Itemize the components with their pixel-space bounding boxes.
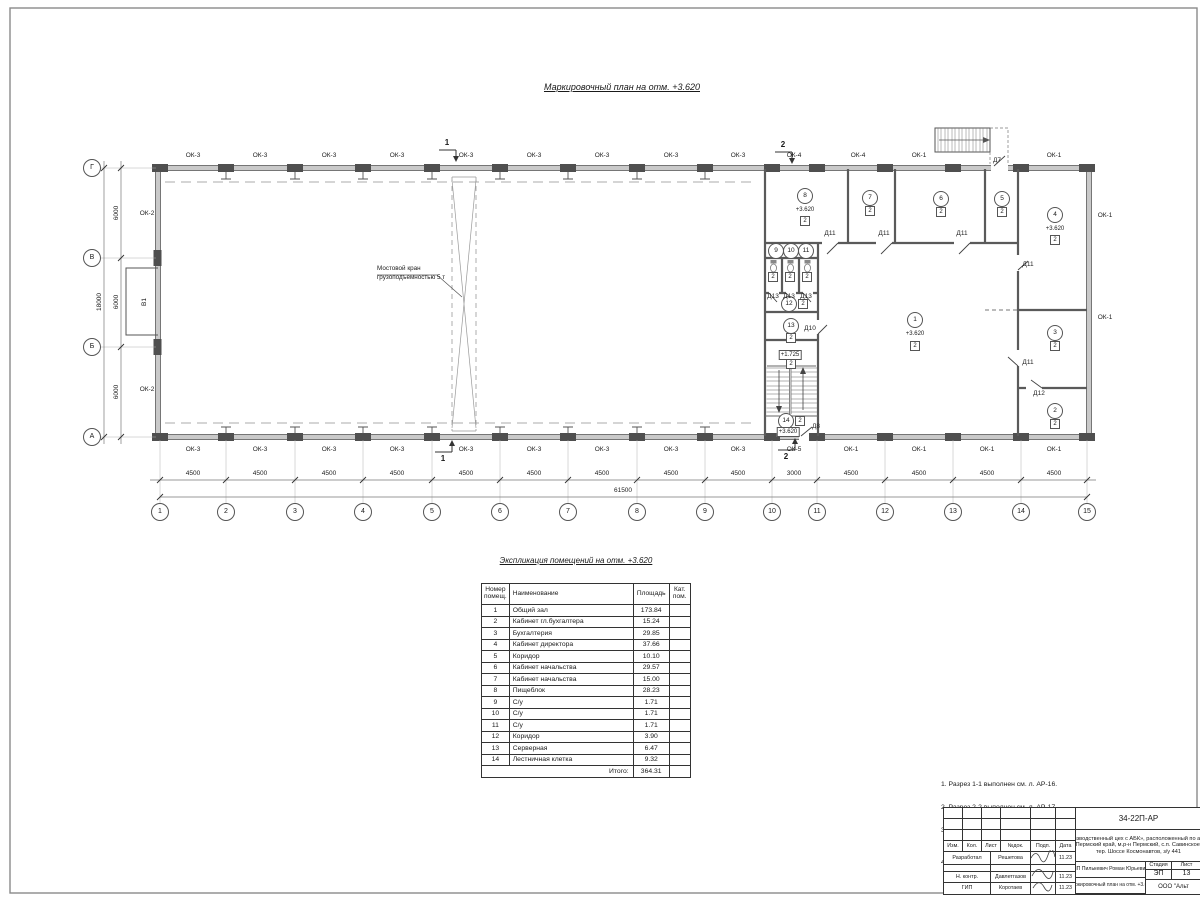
- drawing-sheet: Маркировочный план на отм. +3.620 Экспли…: [0, 0, 1200, 900]
- table-cell: Коридор: [509, 651, 633, 663]
- table-cell: [669, 628, 690, 640]
- table-cell: 12: [482, 731, 510, 743]
- table-row: 7Кабинет начальства15.00: [482, 674, 691, 686]
- dimension-label: 4500: [1047, 471, 1061, 478]
- room-number-bubble: 1: [907, 312, 923, 328]
- title-block: Изм. Кол. Лист №док. Подп. Дата Разработ…: [943, 807, 1200, 895]
- table-cell: [669, 662, 690, 674]
- room-number-bubble: 5: [994, 191, 1010, 207]
- plan-label: ОК-5: [787, 447, 802, 454]
- grid-bubble: А: [83, 428, 101, 446]
- plan-label: ОК-1: [980, 447, 995, 454]
- plan-label: ОК-3: [322, 153, 337, 160]
- stamp-col-ndok: №док.: [1001, 841, 1031, 852]
- plan-label: ОК-3: [390, 153, 405, 160]
- note-item: 1. Разрез 1-1 выполнен см. л. АР-16.: [941, 781, 1196, 789]
- table-row: 10С/у1.71: [482, 708, 691, 720]
- table-cell: 15.00: [633, 674, 669, 686]
- room-category-mark: 2: [768, 272, 778, 282]
- table-cell: 1.71: [633, 697, 669, 709]
- dimension-label: 3000: [787, 471, 801, 478]
- table-cell: [669, 720, 690, 732]
- room-category-mark: 2: [800, 216, 810, 226]
- grid-bubble: 9: [696, 503, 714, 521]
- grid-bubble: 8: [628, 503, 646, 521]
- room-category-mark: 2: [1050, 235, 1060, 245]
- plan-label: ОК-2: [140, 387, 155, 394]
- table-cell: 5: [482, 651, 510, 663]
- table-cell: 9: [482, 697, 510, 709]
- table-row: 1Общий зал173.84: [482, 605, 691, 617]
- table-cell: 29.57: [633, 662, 669, 674]
- plan-label: ОК-3: [664, 153, 679, 160]
- room-category-mark: 2: [865, 206, 875, 216]
- col-header-cat: Кат. пом.: [669, 584, 690, 605]
- plan-label: ОК-3: [527, 153, 542, 160]
- table-row: 3Бухгалтерия29.85: [482, 628, 691, 640]
- elevation-mark: +3.620: [796, 207, 815, 213]
- grid-bubble: 11: [808, 503, 826, 521]
- plan-label: Д11: [1022, 360, 1033, 367]
- table-row: 14Лестничная клетка9.32: [482, 754, 691, 766]
- dimension-label: 4500: [322, 471, 336, 478]
- room-category-mark: 2: [802, 272, 812, 282]
- dimension-label: 61500: [614, 488, 632, 495]
- grid-bubble: 6: [491, 503, 509, 521]
- table-cell: Коридор: [509, 731, 633, 743]
- plan-label: ОК-3: [459, 153, 474, 160]
- grid-bubble: 10: [763, 503, 781, 521]
- table-cell: С/у: [509, 697, 633, 709]
- stamp-doc-code: 34-22П-АР: [1076, 808, 1200, 830]
- plan-label: В1: [142, 298, 149, 306]
- stamp-sheet-title: Маркировочный план на отм. +3.620: [1076, 878, 1146, 894]
- table-cell: 8: [482, 685, 510, 697]
- plan-label: ОК-3: [186, 447, 201, 454]
- room-category-mark: 2: [936, 207, 946, 217]
- table-cell: 10.10: [633, 651, 669, 663]
- table-cell: 29.85: [633, 628, 669, 640]
- table-cell: 11: [482, 720, 510, 732]
- plan-label: Д13: [783, 294, 795, 301]
- grid-bubble: 4: [354, 503, 372, 521]
- dimension-label: 4500: [844, 471, 858, 478]
- grid-bubble: 5: [423, 503, 441, 521]
- dimension-label: 18000: [97, 293, 104, 311]
- plan-label: ОК-3: [527, 447, 542, 454]
- section-mark: 2: [784, 453, 788, 461]
- plan-label: ОК-3: [595, 447, 610, 454]
- room-number-bubble: 10: [783, 243, 799, 259]
- section-mark: 1: [445, 139, 449, 147]
- table-cell: [669, 743, 690, 755]
- plan-label: ОК-1: [1098, 315, 1113, 322]
- table-cell: [669, 685, 690, 697]
- table-row: 11С/у1.71: [482, 720, 691, 732]
- plan-label: ОК-3: [731, 447, 746, 454]
- table-row: 8Пищеблок28.23: [482, 685, 691, 697]
- elevation-mark: +3.620: [1046, 226, 1065, 232]
- plan-label: Д13: [800, 294, 812, 301]
- table-cell: Кабинет гл.бухгалтера: [509, 616, 633, 628]
- table-cell: [669, 651, 690, 663]
- grid-bubble: 13: [944, 503, 962, 521]
- plan-label: Д10: [804, 326, 816, 333]
- table-header-row: Номер помещ. Наименование Площадь Кат. п…: [482, 584, 691, 605]
- stamp-role: Разработал: [944, 852, 991, 865]
- table-row: 9С/у1.71: [482, 697, 691, 709]
- dimension-label: 4500: [527, 471, 541, 478]
- grid-bubble: 2: [217, 503, 235, 521]
- table-cell: Общий зал: [509, 605, 633, 617]
- grid-bubble: 15: [1078, 503, 1096, 521]
- plan-label: ОК-1: [1047, 153, 1062, 160]
- plan-label: Д11: [956, 231, 967, 238]
- plan-label: ОК-1: [1047, 447, 1062, 454]
- room-category-mark: 2: [1050, 341, 1060, 351]
- table-row: 2Кабинет гл.бухгалтера15.24: [482, 616, 691, 628]
- room-number-bubble: 4: [1047, 207, 1063, 223]
- plan-label: Д12: [1033, 391, 1045, 398]
- plan-label: ОК-3: [595, 153, 610, 160]
- plan-label: ОК-3: [731, 153, 746, 160]
- section-mark: 2: [781, 141, 785, 149]
- stamp-role: Н. контр.: [944, 872, 991, 883]
- table-cell: Кабинет директора: [509, 639, 633, 651]
- dimension-label: 6000: [114, 206, 121, 220]
- col-header-name: Наименование: [509, 584, 633, 605]
- elevation-mark: +3.620: [777, 427, 800, 437]
- plan-label: ОК-3: [186, 153, 201, 160]
- room-category-mark: 2: [910, 341, 920, 351]
- grid-bubble: 3: [286, 503, 304, 521]
- stamp-stage-value: ЭП: [1146, 870, 1172, 880]
- table-cell: 9.32: [633, 754, 669, 766]
- plan-label: Д11: [1022, 262, 1033, 269]
- grid-bubble: Г: [83, 159, 101, 177]
- room-category-mark: 2: [997, 207, 1007, 217]
- table-row: 5Коридор10.10: [482, 651, 691, 663]
- table-total-row: Итого: 364.31: [482, 766, 691, 778]
- stamp-date: 11.23: [1056, 883, 1076, 894]
- dimension-label: 4500: [980, 471, 994, 478]
- stamp-stage-label: Стадия: [1146, 862, 1172, 870]
- dimension-label: 4500: [912, 471, 926, 478]
- table-cell: 2: [482, 616, 510, 628]
- plan-label: ОК-1: [844, 447, 859, 454]
- room-category-mark: 2: [798, 299, 808, 309]
- room-category-mark: 2: [786, 333, 796, 343]
- room-number-bubble: 8: [797, 188, 813, 204]
- table-cell: Кабинет начальства: [509, 662, 633, 674]
- table-cell: Серверная: [509, 743, 633, 755]
- table-cell: 13: [482, 743, 510, 755]
- table-cell: 3.90: [633, 731, 669, 743]
- stamp-col-data: Дата: [1056, 841, 1076, 852]
- grid-bubble: 1: [151, 503, 169, 521]
- plan-label: ОК-3: [322, 447, 337, 454]
- table-cell: [669, 639, 690, 651]
- plan-label: ОК-3: [664, 447, 679, 454]
- table-cell: [669, 754, 690, 766]
- dimension-label: 4500: [186, 471, 200, 478]
- table-cell: 14: [482, 754, 510, 766]
- stamp-company: ООО "Альт: [1146, 880, 1200, 894]
- table-cell: [669, 731, 690, 743]
- plan-label: ОК-1: [912, 447, 927, 454]
- room-category-mark: 2: [786, 359, 796, 369]
- grid-bubble: 14: [1012, 503, 1030, 521]
- dimension-label: 4500: [595, 471, 609, 478]
- grid-bubble: 12: [876, 503, 894, 521]
- table-cell: 7: [482, 674, 510, 686]
- dimension-label: 4500: [664, 471, 678, 478]
- room-category-mark: 2: [795, 416, 805, 426]
- plan-label: Д11: [878, 231, 889, 238]
- table-cell: 15.24: [633, 616, 669, 628]
- table-cell: 1: [482, 605, 510, 617]
- dimension-label: 4500: [459, 471, 473, 478]
- total-value: 364.31: [633, 766, 669, 778]
- table-cell: 28.23: [633, 685, 669, 697]
- col-header-area: Площадь: [633, 584, 669, 605]
- table-cell: С/у: [509, 720, 633, 732]
- col-header-number: Номер помещ.: [482, 584, 510, 605]
- dimension-label: 4500: [731, 471, 745, 478]
- dimension-label: 6000: [114, 385, 121, 399]
- room-category-mark: 2: [785, 272, 795, 282]
- table-cell: 6: [482, 662, 510, 674]
- room-number-bubble: 6: [933, 191, 949, 207]
- plan-label: ОК-1: [912, 153, 927, 160]
- table-cell: 6.47: [633, 743, 669, 755]
- table-row: 13Серверная6.47: [482, 743, 691, 755]
- plan-label: ОК-1: [1098, 213, 1113, 220]
- plan-label: ОК-2: [140, 211, 155, 218]
- table-cell: Лестничная клетка: [509, 754, 633, 766]
- grid-bubble: Б: [83, 338, 101, 356]
- table-cell: Пищеблок: [509, 685, 633, 697]
- plan-label: ОК-3: [253, 447, 268, 454]
- grid-bubble: 7: [559, 503, 577, 521]
- table-cell: Кабинет начальства: [509, 674, 633, 686]
- stamp-client: ИП Пилькевич Роман Юрьевич: [1076, 862, 1146, 878]
- room-number-bubble: 13: [783, 318, 799, 334]
- stamp-col-kol: Кол.: [963, 841, 982, 852]
- stamp-name: Коротаев: [991, 883, 1031, 894]
- signature-scrawl: [1029, 850, 1057, 894]
- room-number-bubble: 9: [768, 243, 784, 259]
- plan-label: ОК-4: [787, 153, 802, 160]
- stamp-date: 11.23: [1056, 872, 1076, 883]
- room-number-bubble: 3: [1047, 325, 1063, 341]
- table-row: 6Кабинет начальства29.57: [482, 662, 691, 674]
- stamp-project: «Производственный цех с АБК», расположен…: [1076, 830, 1200, 862]
- room-number-bubble: 11: [798, 243, 814, 259]
- dimension-label: 4500: [253, 471, 267, 478]
- table-cell: 3: [482, 628, 510, 640]
- table-cell: 37.66: [633, 639, 669, 651]
- table-cell: 10: [482, 708, 510, 720]
- plan-label: ОК-3: [253, 153, 268, 160]
- dimension-label: 6000: [114, 295, 121, 309]
- section-mark: 1: [441, 455, 445, 463]
- room-category-mark: 2: [1050, 419, 1060, 429]
- table-cell: [669, 697, 690, 709]
- plan-label: ОК-3: [459, 447, 474, 454]
- plan-label: Д11: [824, 231, 835, 238]
- plan-label: ОК-3: [390, 447, 405, 454]
- stamp-sheet-label: Лист: [1172, 862, 1200, 870]
- table-cell: [669, 605, 690, 617]
- table-cell: [669, 674, 690, 686]
- table-row: 12Коридор3.90: [482, 731, 691, 743]
- stamp-role: ГИП: [944, 883, 991, 894]
- table-cell: [669, 708, 690, 720]
- table-cell: [669, 616, 690, 628]
- room-schedule-table: Номер помещ. Наименование Площадь Кат. п…: [481, 583, 691, 778]
- table-row: 4Кабинет директора37.66: [482, 639, 691, 651]
- elevation-mark: +3.620: [906, 331, 925, 337]
- stamp-name: Решетова: [991, 852, 1031, 865]
- stamp-col-list: Лист: [982, 841, 1001, 852]
- plan-label: Д13: [767, 294, 779, 301]
- room-number-bubble: 7: [862, 190, 878, 206]
- plan-label: ОК-4: [851, 153, 866, 160]
- table-cell: 1.71: [633, 720, 669, 732]
- dimension-label: 4500: [390, 471, 404, 478]
- stamp-date: 11.23: [1056, 852, 1076, 865]
- table-cell: 173.84: [633, 605, 669, 617]
- table-cell: 4: [482, 639, 510, 651]
- table-cell: 1.71: [633, 708, 669, 720]
- total-label: Итого:: [482, 766, 634, 778]
- grid-bubble: В: [83, 249, 101, 267]
- stamp-col-izm: Изм.: [944, 841, 963, 852]
- room-number-bubble: 2: [1047, 403, 1063, 419]
- stamp-sheet-value: 13: [1172, 870, 1200, 880]
- table-cell: Бухгалтерия: [509, 628, 633, 640]
- stamp-name: Давлетгазов: [991, 872, 1031, 883]
- plan-label: Д7: [993, 158, 1001, 165]
- plan-label: Д8: [812, 424, 820, 431]
- table-cell: С/у: [509, 708, 633, 720]
